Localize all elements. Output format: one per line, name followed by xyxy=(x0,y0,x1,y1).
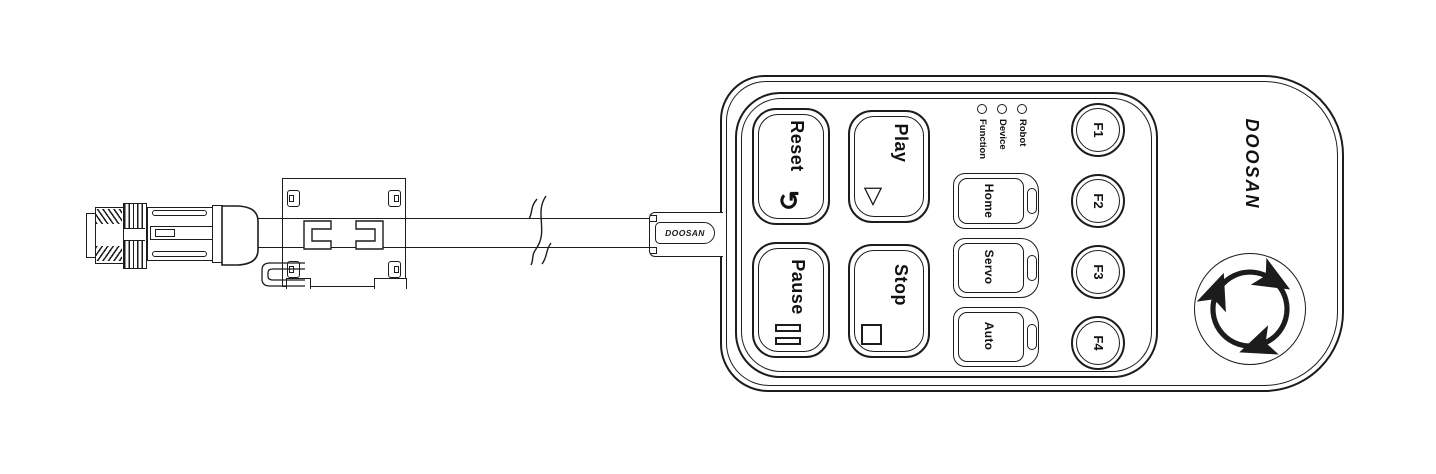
f4-button-label: F4 xyxy=(1090,318,1106,368)
device-led-icon xyxy=(997,104,1007,114)
connector-ring xyxy=(212,205,223,263)
f3-button-label: F3 xyxy=(1090,247,1106,297)
stop-button-label: Stop xyxy=(891,225,911,345)
pause-bars-icon xyxy=(775,324,801,332)
servo-led-pill xyxy=(1027,255,1037,281)
connector-barrel xyxy=(147,207,213,261)
stop-square-icon xyxy=(861,324,882,345)
cable-grommet: DOOSAN xyxy=(649,212,723,257)
pause-bars-icon xyxy=(775,337,801,345)
robot-led-icon xyxy=(1017,104,1027,114)
doosan-logo: DOOSAN xyxy=(1243,109,1261,219)
play-button-label: Play xyxy=(891,83,911,203)
home-led-pill xyxy=(1027,188,1037,214)
ferrite-step xyxy=(374,278,407,289)
emergency-stop-button[interactable] xyxy=(1194,253,1306,365)
function-led-icon xyxy=(977,104,987,114)
ferrite-latch xyxy=(388,261,401,278)
device-led-label: Device xyxy=(996,119,1008,171)
ferrite-step xyxy=(286,278,311,289)
play-triangle-icon: ▽ xyxy=(858,182,888,210)
connector-threaded-tip xyxy=(95,207,124,264)
ferrite-latch xyxy=(388,190,401,207)
grommet-brand-pill: DOOSAN xyxy=(655,222,715,244)
reset-rotate-icon: ↺ xyxy=(774,186,804,216)
grommet-brand-label: DOOSAN xyxy=(665,228,705,238)
f2-button-label: F2 xyxy=(1090,176,1106,226)
connector-knurled-nut xyxy=(123,203,147,269)
robot-led-label: Robot xyxy=(1016,119,1028,171)
auto-button-label: Auto xyxy=(981,291,997,381)
diagram-canvas: DOOSAN Reset Play Pause Stop ↺ ▽ Home Se… xyxy=(0,0,1436,474)
function-led-label: Function xyxy=(976,119,988,171)
connector-boot xyxy=(222,206,258,265)
ferrite-latch xyxy=(287,261,300,278)
auto-led-pill xyxy=(1027,324,1037,350)
f1-button-label: F1 xyxy=(1090,105,1106,155)
ferrite-latch xyxy=(287,190,300,207)
